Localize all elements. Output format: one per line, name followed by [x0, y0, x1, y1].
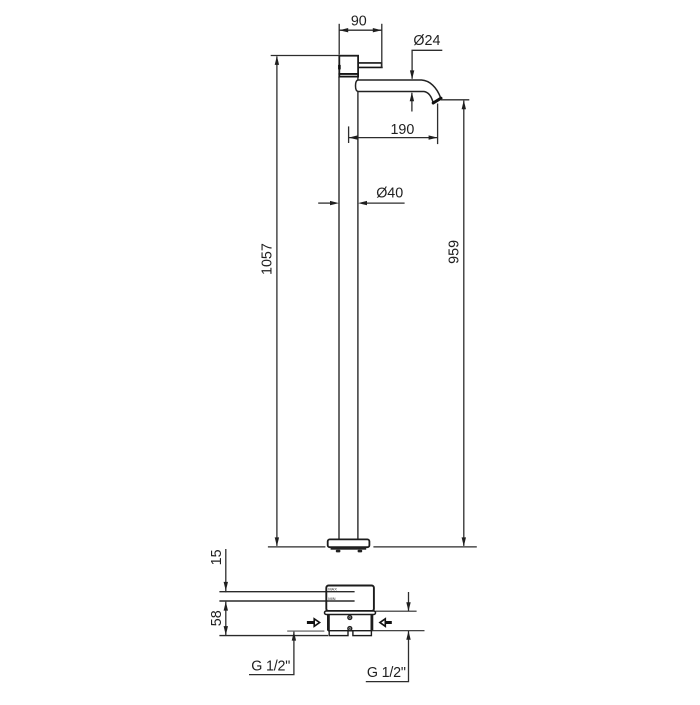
svg-text:Ø40: Ø40	[376, 186, 403, 202]
svg-text:MIN: MIN	[328, 596, 335, 601]
svg-text:Ø24: Ø24	[413, 33, 440, 49]
svg-text:58: 58	[209, 610, 225, 626]
svg-text:1057: 1057	[260, 243, 276, 275]
svg-text:90: 90	[351, 13, 367, 29]
svg-text:MAX: MAX	[328, 586, 337, 591]
svg-text:190: 190	[390, 122, 414, 138]
svg-text:959: 959	[447, 240, 463, 264]
svg-text:G 1/2": G 1/2"	[367, 665, 406, 681]
svg-text:15: 15	[209, 549, 225, 565]
svg-text:G 1/2": G 1/2"	[251, 658, 290, 674]
